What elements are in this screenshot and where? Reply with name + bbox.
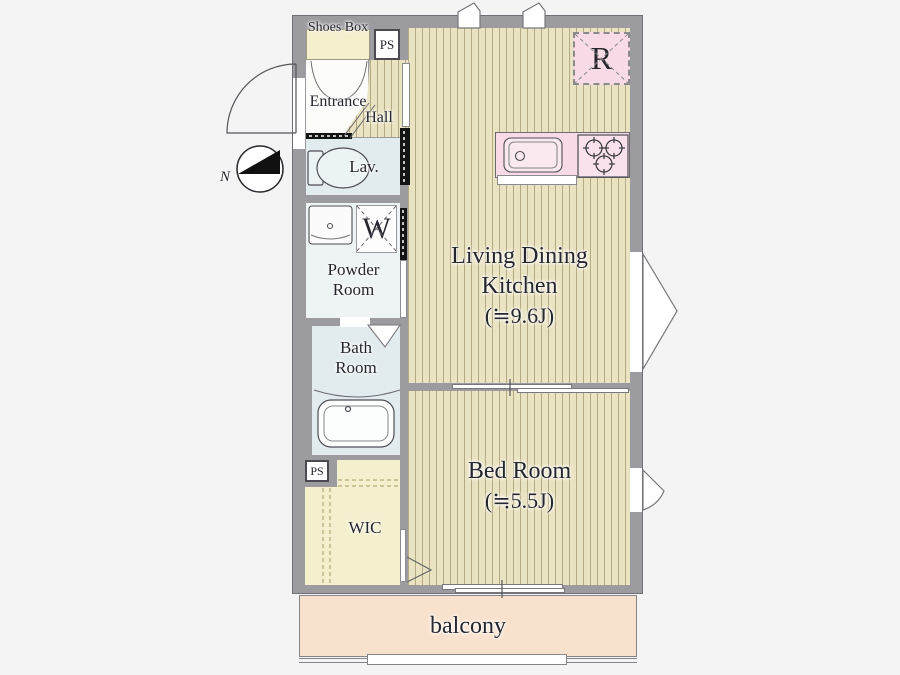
powder-room-sliding-door: [400, 208, 407, 260]
bedroom-casement-flap: [643, 470, 664, 510]
ldk-label: Living Dining Kitchen (≒9.6J): [408, 241, 631, 331]
compass-icon: [237, 146, 283, 192]
bath-room-label-line2: Room: [311, 358, 401, 378]
balcony-label: balcony: [430, 612, 506, 641]
pipe-space-bottom-label: PS: [310, 464, 323, 479]
wic-door: [400, 529, 406, 582]
pipe-space-top-label: PS: [380, 37, 394, 53]
front-door-arc: [227, 64, 296, 133]
shoes-box-label: Shoes Box: [306, 20, 370, 37]
hall-label: Hall: [356, 108, 402, 127]
balcony-window-leaf2: [455, 588, 565, 593]
powder-room-label: Powder Room: [306, 260, 401, 301]
refrigerator-label: R: [591, 40, 612, 77]
washing-machine-label: W: [362, 212, 390, 246]
front-door-opening: [293, 78, 305, 149]
bedroom-label-name: Bed Room: [408, 457, 631, 486]
bath-room-label-line1: Bath: [311, 338, 401, 358]
bedroom-area-label: (≒5.5J): [408, 486, 631, 515]
bath-door-opening: [340, 317, 370, 327]
lavatory-track: [306, 133, 352, 139]
washing-machine-box: W: [356, 205, 397, 253]
refrigerator-box: R: [573, 32, 630, 85]
compass-north-label: N: [214, 168, 236, 186]
powder-room-label-line2: Room: [306, 280, 401, 300]
lavatory-label: Lav.: [336, 157, 392, 177]
pipe-space-top: PS: [374, 29, 400, 60]
ldk-area-label: (≒9.6J): [408, 301, 631, 331]
bath-room-label: Bath Room: [311, 338, 401, 379]
pipe-space-bottom: PS: [305, 460, 329, 482]
balcony-railing-panel: [367, 654, 567, 665]
ldk-bedroom-slider-leaf2: [517, 388, 629, 393]
ldk-casement-flap: [643, 254, 677, 369]
balcony: balcony: [299, 595, 637, 657]
floorplan-page: PS W PS R balcony: [0, 0, 900, 675]
wic-label: WIC: [334, 518, 396, 538]
kitchen-counter: [495, 132, 630, 178]
hall-ldk-doorway: [402, 63, 410, 127]
wic-room-left: [305, 487, 337, 585]
bedroom-label: Bed Room (≒5.5J): [408, 457, 631, 515]
powder-room-partition: [400, 260, 407, 318]
kitchen-counter-step: [497, 175, 577, 185]
lavatory-sliding-door: [400, 128, 410, 185]
ldk-label-line2: Kitchen: [408, 271, 631, 301]
ldk-label-line1: Living Dining: [408, 241, 631, 271]
ldk-window-opening: [630, 252, 642, 372]
powder-room-label-line1: Powder: [306, 260, 401, 280]
bedroom-window-opening: [630, 468, 642, 512]
